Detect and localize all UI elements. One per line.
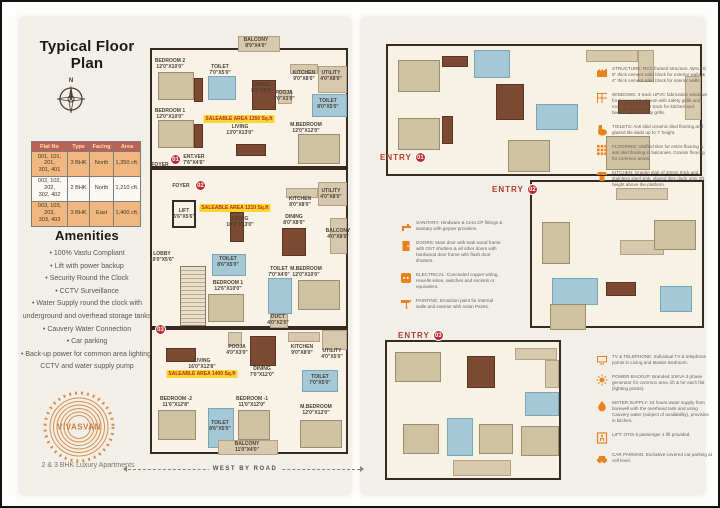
bed [158, 72, 194, 100]
spec-text: TOILETS: Anti skid ceramic tiled floorin… [612, 124, 708, 136]
spec-text: SANITARY: Hindware & Cera CP fittings & … [416, 220, 504, 232]
entry-02-label: ENTRY 02 [492, 184, 538, 195]
spec-item: FLOORING: Vitrified tiles for entire flo… [596, 144, 708, 162]
sofa [606, 282, 636, 296]
spec-item: KITCHEN: Granite slab of 20mm thick and … [596, 170, 708, 188]
col-type: Type [68, 142, 90, 152]
cell-flat-no: 001, 101, 201, 301, 401 [32, 152, 68, 177]
flat-02-badge: 02 [195, 180, 206, 191]
cell-facing: North [90, 152, 114, 177]
dining-table [496, 84, 524, 120]
spec-text: WINDOWS: 3 track UPVC fabrication window… [612, 92, 708, 116]
vivasvan-logo: VIVASVAN [42, 390, 116, 464]
flat-03-badge: 03 [155, 324, 166, 335]
room-label: DINING 8'0"X8'0" [283, 214, 305, 226]
bed [158, 410, 196, 440]
saleable-area-label: SALEABLE AREA 1400 Sq.ft [166, 370, 237, 378]
brochure-spread: Typical Floor Plan N Flat No Type Facing… [0, 0, 720, 508]
sanitary-icon [400, 220, 412, 232]
spec-item: WATER SUPPLY: 24 hours water supply from… [596, 400, 712, 424]
flat-01-badge: 01 [170, 154, 181, 165]
spec-item: ELECTRICAL: Concealed copper wiring, Hav… [400, 272, 504, 290]
kitchen-counter [586, 50, 638, 62]
flat-table-header-row: Flat No Type Facing Area [32, 142, 141, 152]
entry-label-text: ENTRY [380, 153, 412, 162]
room-label: FOYER [172, 183, 189, 189]
room-label: BALCONY 4'0"X8'0" [326, 228, 351, 240]
room-label: BEDROOM -1 11'0"X12'0" [236, 396, 268, 408]
spec-item: LIFT: OTIS 6 passenger 1 lift provided. [596, 432, 712, 444]
spec-item: STRUCTURE: RCC framed structure. WALLS: … [596, 66, 708, 84]
car-parking-icon [596, 452, 608, 464]
amenity-item: Security Round the Clock [16, 273, 158, 286]
spec-item: CAR PARKING: Exclusive covered car parki… [596, 452, 712, 464]
entry-label-text: ENTRY [398, 331, 430, 340]
col-area: Area [114, 142, 141, 152]
tv-telephone-icon [596, 354, 608, 366]
structure-icon [596, 66, 608, 78]
toilet-area [447, 418, 473, 456]
room-label: BEDROOM 1 12'6"X10'0" [213, 280, 243, 292]
toilet-area [552, 278, 598, 305]
room-label: TOILET 7'0"X5'0" [309, 374, 331, 386]
spec-text: STRUCTURE: RCC framed structure. WALLS: … [612, 66, 708, 84]
dining-table [467, 356, 495, 388]
typical-floor-plan-drawing: BALCONY 8'9"X4'0" BEDROOM 2 12'0"X10'0" … [150, 32, 348, 458]
spec-text: PAINTING: Emulsion paint for internal wa… [416, 298, 504, 310]
spec-item: SANITARY: Hindware & Cera CP fittings & … [400, 220, 504, 232]
room-label: M.BEDROOM 12'0"X12'0" [290, 122, 322, 134]
spec-text: FLOORING: Vitrified tiles for entire flo… [612, 144, 708, 162]
room-label: LIVING 16'0"X12'8" [188, 358, 215, 370]
electrical-icon [400, 272, 412, 284]
utility-area [322, 330, 347, 350]
power-backup-icon [596, 374, 608, 386]
col-facing: Facing [90, 142, 114, 152]
toilet-area [536, 104, 578, 130]
flat-table: Flat No Type Facing Area 001, 101, 201, … [31, 141, 141, 227]
bed [300, 420, 342, 448]
spec-list-fittings: SANITARY: Hindware & Cera CP fittings & … [400, 220, 504, 310]
col-flat-no: Flat No [32, 142, 68, 152]
dining-table [282, 228, 306, 256]
entry-label-text: ENTRY [492, 185, 524, 194]
room-label: DUCT 4'0"X2'0" [267, 314, 289, 326]
spec-text: LIFT: OTIS 6 passenger 1 lift provided. [612, 432, 691, 438]
room-label: LIVING 10'0"X13'0" [226, 216, 253, 228]
saleable-area-label: SALEABLE AREA 1350 Sq.ft [203, 115, 274, 123]
entry-02-plan-drawing [530, 180, 704, 328]
toilet-area [268, 278, 292, 314]
road-arrow-left-icon [123, 466, 127, 472]
spec-text: WATER SUPPLY: 24 hours water supply from… [612, 400, 712, 424]
cell-type: 2 BHK [68, 176, 90, 201]
kitchen-counter [616, 188, 668, 200]
room-label: DINING 8'5"X8'0" [251, 82, 273, 94]
spec-item: POWER BACKUP: Branded 10KVA 3 phase gene… [596, 374, 712, 392]
water-supply-icon [596, 400, 608, 412]
entry-03-badge: 03 [433, 330, 444, 341]
room-label: TOILET 8'6"X5'0" [217, 256, 239, 268]
room-label: BALCONY 11'0"X4'0" [235, 441, 260, 453]
spec-list-services: TV & TELEPHONE: Individual TV & telephon… [596, 354, 712, 464]
stairs [180, 266, 206, 326]
spec-item: TOILETS: Anti skid ceramic tiled floorin… [596, 124, 708, 136]
toilet-area [525, 392, 559, 416]
toilet-area [660, 286, 692, 312]
amenities-list: 100% Vastu Compliant Lift with power bac… [16, 248, 158, 374]
room-label: UTILITY 4'0"X8'0" [320, 70, 342, 82]
room-label: TOILET 8'6"X5'0" [209, 420, 231, 432]
bed [395, 352, 441, 382]
table-row: 002, 102, 202, 302, 402 2 BHK North 1,21… [32, 176, 141, 201]
spec-text: KITCHEN: Granite slab of 20mm thick and … [612, 170, 708, 188]
wardrobe [442, 116, 453, 144]
spec-text: ELECTRICAL: Concealed copper wiring, Hav… [416, 272, 504, 290]
entry-01-label: ENTRY 01 [380, 152, 426, 163]
flooring-icon [596, 144, 608, 156]
bed [403, 424, 439, 454]
saleable-area-label: SALEABLE AREA 1210 Sq.ft [199, 204, 270, 212]
amenity-item: Cauvery Water Connection [16, 324, 158, 337]
amenity-item: Car parking [16, 336, 158, 349]
bed [550, 304, 586, 330]
spec-item: TV & TELEPHONE: Individual TV & telephon… [596, 354, 712, 366]
bed [654, 220, 696, 250]
room-label: BEDROOM 1 12'0"X10'0" [155, 108, 185, 120]
bed [298, 134, 340, 164]
room-label: LOBBY 19'0"X5'6" [150, 251, 174, 263]
room-label: BEDROOM -2 11'6"X12'8" [160, 396, 192, 408]
cell-facing: North [90, 176, 114, 201]
doors-icon [400, 240, 412, 252]
sofa [236, 144, 266, 156]
room-label: M.BEDROOM 12'0"X10'0" [290, 266, 322, 278]
spec-text: DOORS: Main door with teak wood frame wi… [416, 240, 504, 264]
spec-item: DOORS: Main door with teak wood frame wi… [400, 240, 504, 264]
utility-area [545, 360, 559, 388]
cell-area: 1,350 cft. [114, 152, 141, 177]
room-label: TOILET 8'0"X5'0" [317, 98, 339, 110]
cell-type: 3 BHK [68, 152, 90, 177]
toilet-area [208, 76, 236, 100]
spec-list-construction: STRUCTURE: RCC framed structure. WALLS: … [596, 66, 708, 188]
room-label: BEDROOM 2 12'0"X10'0" [155, 58, 185, 70]
logo-tagline: 2 & 3 BHK Luxury Apartments [18, 462, 158, 469]
room-label: POOJA 4'0"X3'0" [273, 90, 295, 102]
bed [208, 294, 244, 322]
cell-area: 1,210 cft. [114, 176, 141, 201]
room-label: FOYER [151, 162, 168, 168]
kitchen-counter [288, 332, 320, 342]
bed [542, 222, 570, 264]
room-label: LIVING 13'0"X13'0" [226, 124, 253, 136]
amenity-item: 100% Vastu Compliant [16, 248, 158, 261]
amenity-item: Lift with power backup [16, 261, 158, 274]
amenity-item: Back-up power for common area lighting, … [16, 349, 158, 374]
road-arrow-right-icon [360, 466, 364, 472]
road-label: WEST BY ROAD [209, 466, 282, 472]
room-label: UTILITY 4'0"X5'0" [321, 348, 343, 360]
spec-item: WINDOWS: 3 track UPVC fabrication window… [596, 92, 708, 116]
bed [298, 280, 340, 310]
lift-icon [596, 432, 608, 444]
spec-text: TV & TELEPHONE: Individual TV & telephon… [612, 354, 712, 366]
amenity-item: Water Supply round the clock with underg… [16, 298, 158, 323]
room-label: LIFT 5'6"X5'6" [173, 208, 195, 220]
room-label: ENT.VER 7'6"X4'6" [183, 154, 205, 166]
room-label: KITCHEN 9'0"X8'0" [291, 344, 313, 356]
room-label: M.BEDROOM 12'0"X12'0" [300, 404, 332, 416]
bed [479, 424, 513, 454]
toilet-area [474, 50, 510, 78]
logo-wordmark: VIVASVAN [57, 423, 101, 432]
spec-text: CAR PARKING: Exclusive covered car parki… [612, 452, 712, 464]
room-label: POOJA 4'0"X3'0" [226, 344, 248, 356]
room-label: KITCHEN 8'0"X8'0" [289, 196, 311, 208]
bed [508, 140, 550, 172]
wardrobe [442, 56, 468, 67]
compass-icon: N [54, 78, 88, 118]
room-label: KITCHEN 9'0"X8'0" [293, 70, 315, 82]
toilets-icon [596, 124, 608, 136]
spec-text: POWER BACKUP: Branded 10KVA 3 phase gene… [612, 374, 712, 392]
windows-icon [596, 92, 608, 104]
bed [398, 118, 440, 150]
cell-flat-no: 002, 102, 202, 302, 402 [32, 176, 68, 201]
bed [398, 60, 440, 92]
room-label: UTILITY 4'0"X8'0" [320, 188, 342, 200]
entry-02-badge: 02 [527, 184, 538, 195]
painting-icon [400, 298, 412, 310]
kitchen-counter [515, 348, 557, 360]
table-row: 001, 101, 201, 301, 401 3 BHK North 1,35… [32, 152, 141, 177]
room-label: BALCONY 8'9"X4'0" [244, 37, 269, 49]
room-label: TOILET 7'0"X4'0" [268, 266, 290, 278]
dining-table [250, 336, 276, 366]
wardrobe [194, 124, 203, 148]
table-row: 003, 103, 203, 303, 403 3 BHK East 1,400… [32, 201, 141, 226]
spec-item: PAINTING: Emulsion paint for internal wa… [400, 298, 504, 310]
bed [238, 410, 270, 440]
amenities-title: Amenities [26, 228, 148, 243]
entry-03-plan-drawing [385, 340, 561, 480]
entry-01-badge: 01 [415, 152, 426, 163]
cell-facing: East [90, 201, 114, 226]
amenity-item: CCTV Surveillance [16, 286, 158, 299]
entry-03-label: ENTRY 03 [398, 330, 444, 341]
balcony-area [453, 460, 511, 476]
room-label: TOILET 7'0"X5'0" [209, 64, 231, 76]
wardrobe [194, 78, 203, 102]
cell-type: 3 BHK [68, 201, 90, 226]
cell-flat-no: 003, 103, 203, 303, 403 [32, 201, 68, 226]
bed [158, 120, 194, 148]
room-label: DINING 7'0"X12'0" [250, 366, 274, 378]
bed [521, 426, 559, 456]
kitchen-icon [596, 170, 608, 182]
page-title: Typical Floor Plan [26, 38, 148, 72]
cell-area: 1,400 cft. [114, 201, 141, 226]
